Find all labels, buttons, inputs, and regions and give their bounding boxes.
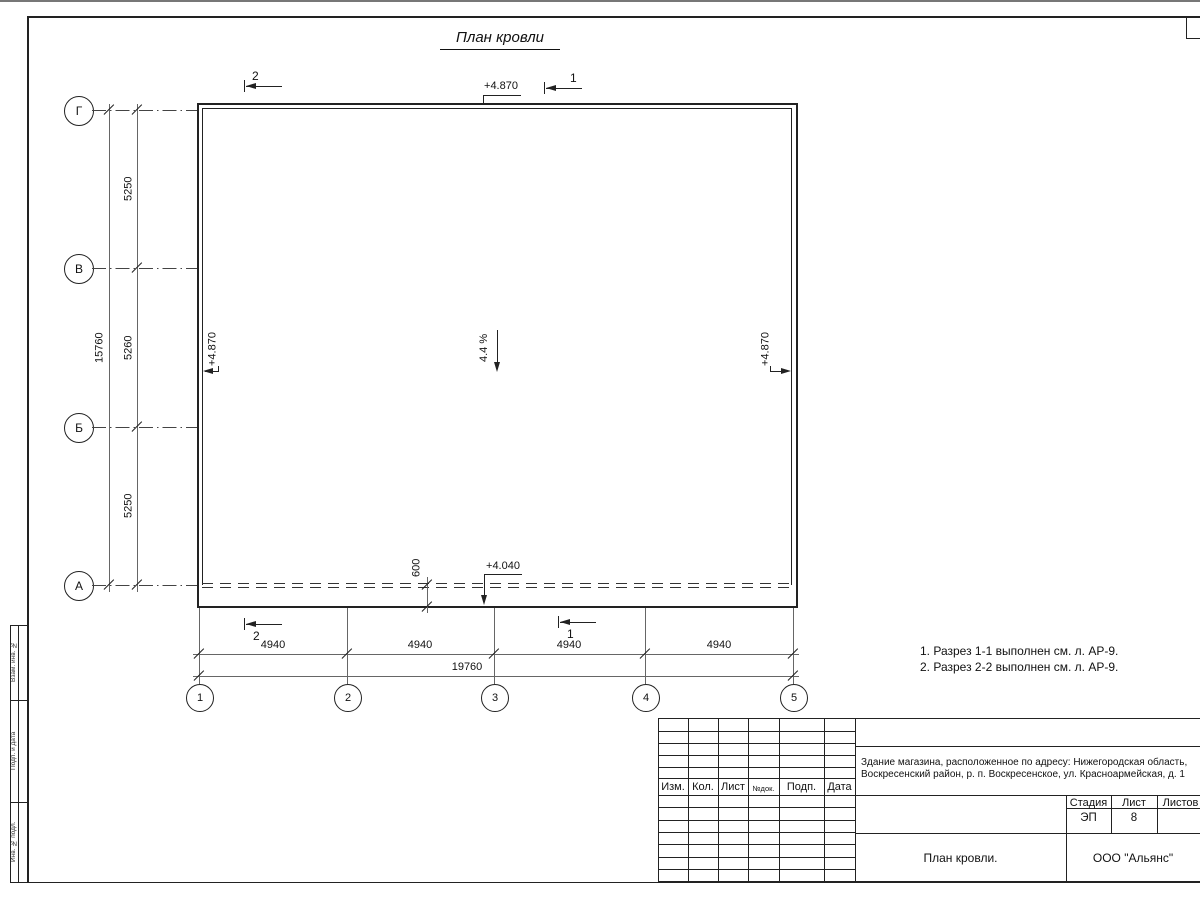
strip-line-v2	[18, 625, 19, 882]
section-mark-2-bottom-arrow	[246, 621, 256, 627]
h-dim-1: 4940	[243, 639, 303, 651]
tb-col-kol: Кол.	[688, 781, 718, 793]
tb-sheets-label: Листов	[1157, 797, 1200, 809]
slope-label: 4.4 %	[477, 322, 491, 374]
h-dim-4: 4940	[689, 639, 749, 651]
v-dim-5250-bottom: 5250	[122, 476, 135, 536]
elevation-eave-leader-v	[484, 574, 485, 596]
section-mark-1-top-arrow	[546, 85, 556, 91]
tb-project-line2: Воскресенский район, р. п. Воскресенское…	[861, 769, 1200, 781]
axis-label-2: 2	[345, 692, 351, 704]
tb-line	[658, 743, 855, 744]
tb-line	[658, 869, 855, 870]
h-dim-2: 4940	[390, 639, 450, 651]
tb-line	[855, 833, 1200, 834]
notes: 1. Разрез 1-1 выполнен см. л. АР-9. 2. Р…	[920, 643, 1118, 675]
v-dim-line-total	[109, 104, 110, 592]
tb-line	[658, 832, 855, 833]
tb-col-ndok: №док.	[748, 784, 779, 793]
note-2: 2. Разрез 2-2 выполнен см. л. АР-9.	[920, 659, 1118, 675]
tb-col-data: Дата	[824, 781, 855, 793]
tb-project-line1: Здание магазина, расположенное по адресу…	[861, 757, 1200, 769]
section-mark-2-top-arrow	[246, 83, 256, 89]
v-dim-total: 15760	[93, 314, 106, 382]
tb-drawing-name: План кровли.	[855, 851, 1066, 865]
axis-circle-2: 2	[334, 684, 362, 712]
v-dim-5250-top: 5250	[122, 159, 135, 219]
paper-bottom-edge	[0, 0, 1200, 2]
slope-arrow-line	[497, 330, 498, 364]
note-1: 1. Разрез 1-1 выполнен см. л. АР-9.	[920, 643, 1118, 659]
axis-circle-a: А	[64, 571, 94, 601]
axis-line-v	[92, 268, 197, 269]
axis-label-3: 3	[492, 692, 498, 704]
tb-col-podp: Подп.	[779, 781, 824, 793]
tb-line	[855, 746, 1200, 747]
frame-left	[27, 16, 29, 883]
tb-line	[658, 881, 1200, 882]
axis-circle-1: 1	[186, 684, 214, 712]
tb-sheet-label: Лист	[1111, 797, 1157, 809]
strip-line-h1	[10, 625, 27, 626]
tb-line	[658, 731, 855, 732]
axis-circle-4: 4	[632, 684, 660, 712]
section-mark-1-bottom-bar	[558, 616, 559, 628]
section-mark-1-top-label: 1	[570, 71, 577, 85]
tb-line	[658, 755, 855, 756]
overhang-dim-label: 600	[410, 551, 423, 585]
axis-circle-3: 3	[481, 684, 509, 712]
hidden-wall-line-2	[202, 587, 791, 588]
h-dim-3: 4940	[539, 639, 599, 651]
tb-line	[658, 767, 855, 768]
elevation-eave: +4.040	[481, 560, 525, 572]
roof-outline-left-inner	[202, 108, 203, 585]
tb-line	[658, 778, 855, 779]
tb-stage-label: Стадия	[1066, 797, 1111, 809]
hidden-wall-line-1	[202, 583, 791, 584]
sheet-title: План кровли	[440, 29, 560, 50]
tb-line	[658, 844, 855, 845]
strip-label-3: Инв. № подл.	[9, 810, 18, 874]
elevation-top-leader-h	[483, 95, 521, 96]
strip-line-h2	[10, 700, 27, 701]
frame-top	[27, 16, 1200, 18]
elevation-eave-arrow	[481, 595, 487, 605]
tb-col-list: Лист	[718, 781, 748, 793]
roof-outline-right-outer	[796, 103, 798, 607]
axis-label-g: Г	[76, 104, 83, 118]
roof-outline-top-outer	[197, 103, 798, 105]
axis-circle-5: 5	[780, 684, 808, 712]
roof-outline-left-outer	[197, 103, 199, 607]
axis-label-4: 4	[643, 692, 649, 704]
strip-label-1: Взам. инв. №	[9, 630, 18, 694]
h-dim-total: 19760	[437, 661, 497, 673]
axis-circle-v: В	[64, 254, 94, 284]
drawing-sheet: Взам. инв. № Подп. и дата Инв. № подл. П…	[0, 0, 1200, 900]
ext-line-4	[645, 608, 646, 684]
strip-label-2: Подп. и дата	[9, 715, 18, 787]
elevation-eave-leader-h	[484, 574, 522, 575]
tb-line	[658, 795, 1200, 796]
elevation-top: +4.870	[480, 80, 522, 92]
corner-cell-line-v	[1186, 16, 1187, 38]
section-mark-1-bottom-arrow	[560, 619, 570, 625]
section-mark-2-bottom-bar	[244, 618, 245, 630]
strip-line-h3	[10, 802, 27, 803]
v-dim-line-segments	[137, 104, 138, 592]
h-dim-line-segments	[193, 654, 799, 655]
tb-stage-value: ЭП	[1066, 812, 1111, 824]
elevation-left-arrow	[203, 368, 213, 374]
v-dim-5260: 5260	[122, 318, 135, 378]
axis-label-a: А	[75, 579, 83, 593]
axis-line-b	[92, 427, 197, 428]
section-mark-2-top-label: 2	[252, 69, 259, 83]
ext-line-2	[347, 608, 348, 684]
axis-circle-g: Г	[64, 96, 94, 126]
tb-line	[658, 857, 855, 858]
elevation-top-leader-v	[483, 95, 484, 103]
axis-circle-b: Б	[64, 413, 94, 443]
corner-cell-line-h	[1186, 38, 1200, 39]
tb-line	[658, 718, 1200, 719]
roof-outline-top-inner	[202, 108, 792, 109]
tb-project-description: Здание магазина, расположенное по адресу…	[861, 757, 1200, 781]
axis-label-1: 1	[197, 692, 203, 704]
tb-line	[658, 807, 855, 808]
tb-col-izm: Изм.	[658, 781, 688, 793]
tb-organization: ООО "Альянс"	[1066, 851, 1200, 865]
roof-outline-right-inner	[791, 108, 792, 585]
tb-line	[658, 820, 855, 821]
elevation-right-arrow	[781, 368, 791, 374]
axis-label-5: 5	[791, 692, 797, 704]
h-dim-line-total	[193, 676, 799, 677]
axis-label-v: В	[75, 262, 83, 276]
tb-sheet-value: 8	[1111, 812, 1157, 824]
axis-label-b: Б	[75, 421, 83, 435]
slope-arrow-head	[494, 362, 500, 372]
roof-eave-line	[197, 606, 798, 608]
